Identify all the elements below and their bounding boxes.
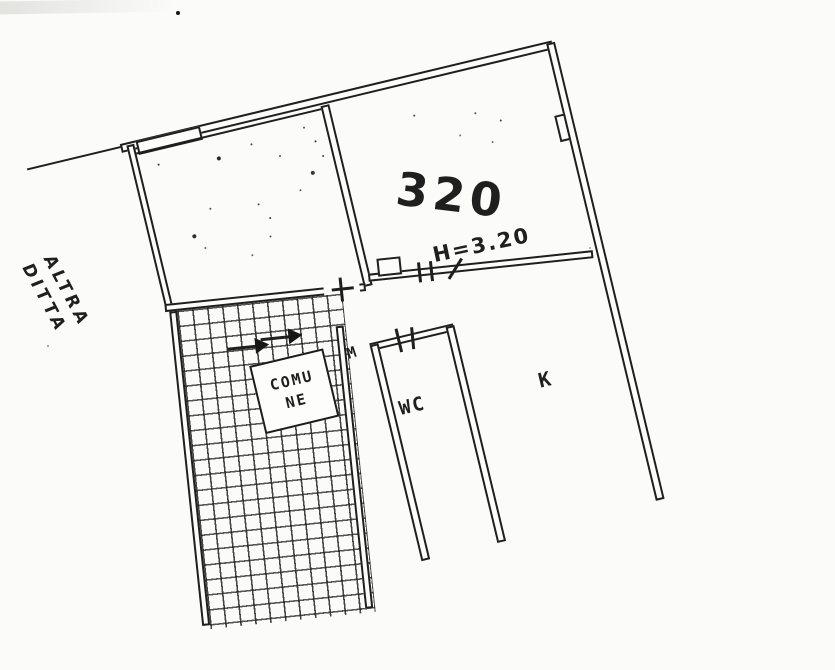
outer-right-wall	[546, 42, 664, 501]
door-opening-tick	[429, 261, 434, 281]
door-opening-tick	[417, 262, 422, 282]
wc-left-wall	[370, 343, 431, 561]
wc-label: WC	[397, 392, 428, 420]
door-leaf-box	[376, 256, 402, 276]
comune-label-line2: NE	[284, 389, 310, 415]
stair-treads	[177, 293, 376, 629]
altra-ditta-label: ALTRA DITTA	[15, 252, 95, 339]
scan-shade	[0, 0, 175, 15]
wc-right-wall	[446, 325, 507, 543]
left-room-top-line	[136, 108, 323, 155]
scanned-floor-plan: { "plan": { "colors": { "ink": "#1f1f1f"…	[0, 0, 835, 467]
stair-direction-arrow-icon	[288, 327, 304, 344]
outer-left-wall	[126, 144, 173, 311]
kitchen-label: K	[536, 366, 553, 392]
divider-wall-left-vs-320	[320, 104, 372, 287]
left-room-scan-speckle	[157, 163, 159, 165]
room-320-number: 320	[393, 161, 510, 228]
scan-noise-dots	[176, 11, 180, 15]
room-320-scan-speckle	[413, 114, 415, 116]
